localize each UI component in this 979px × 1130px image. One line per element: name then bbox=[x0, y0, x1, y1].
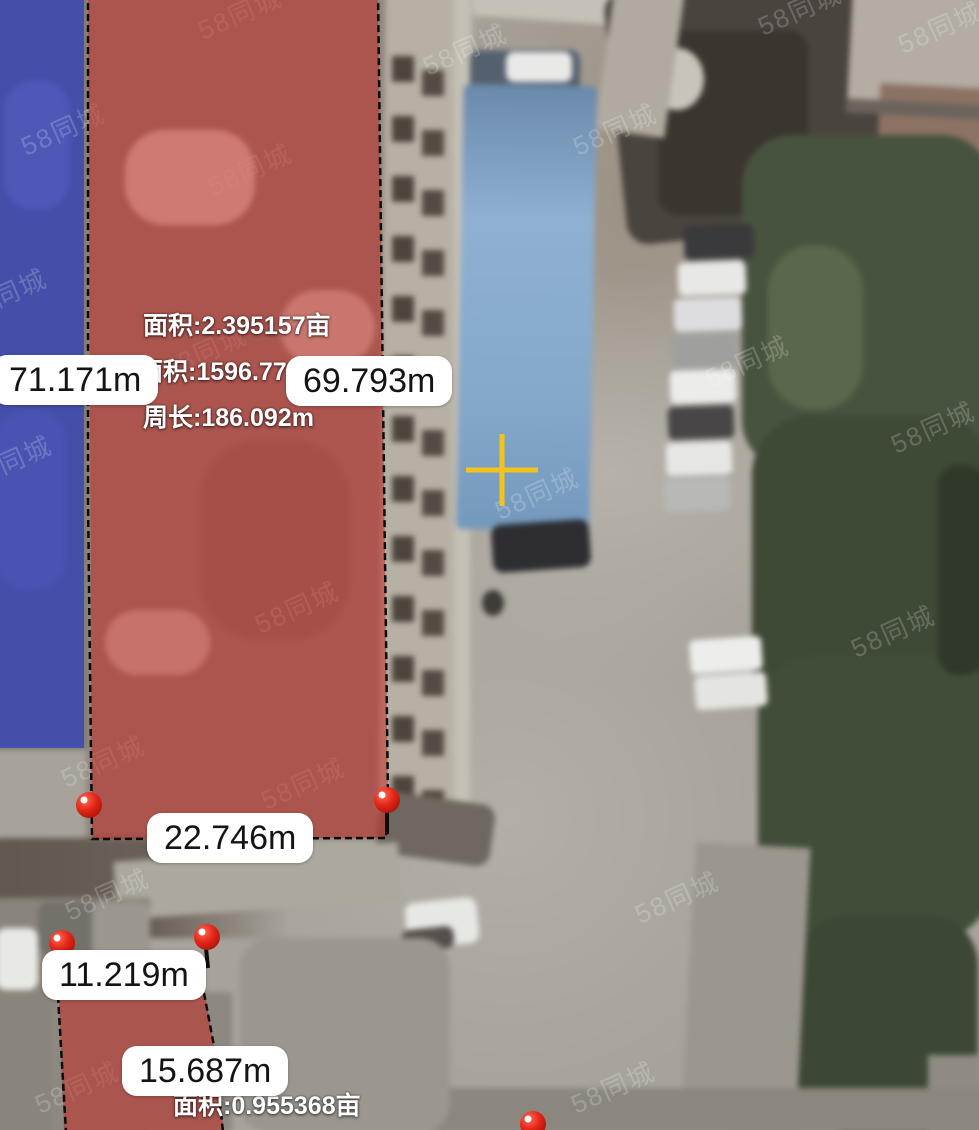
edge-length-label-segment-b: 15.687m bbox=[122, 1046, 288, 1096]
edge-length-label-left: 71.171m bbox=[0, 355, 158, 405]
crosshair-icon bbox=[466, 434, 538, 506]
vertex-marker[interactable] bbox=[194, 924, 220, 950]
vertex-marker[interactable] bbox=[374, 787, 400, 813]
edge-length-label-right: 69.793m bbox=[286, 356, 452, 406]
perimeter-annotation: 周长:186.092m bbox=[143, 398, 314, 434]
edge-length-label-segment-a: 11.219m bbox=[42, 950, 206, 1000]
area-mu-annotation: 面积:2.395157亩 bbox=[143, 306, 331, 342]
edge-tick bbox=[206, 948, 208, 968]
vertex-marker[interactable] bbox=[520, 1111, 546, 1130]
edge-length-label-bottom: 22.746m bbox=[147, 813, 313, 863]
vertex-marker[interactable] bbox=[76, 792, 102, 818]
map-canvas[interactable]: 58同城 58同城 58同城 58同城 58同城 58同城 58同城 58同城 … bbox=[0, 0, 979, 1130]
